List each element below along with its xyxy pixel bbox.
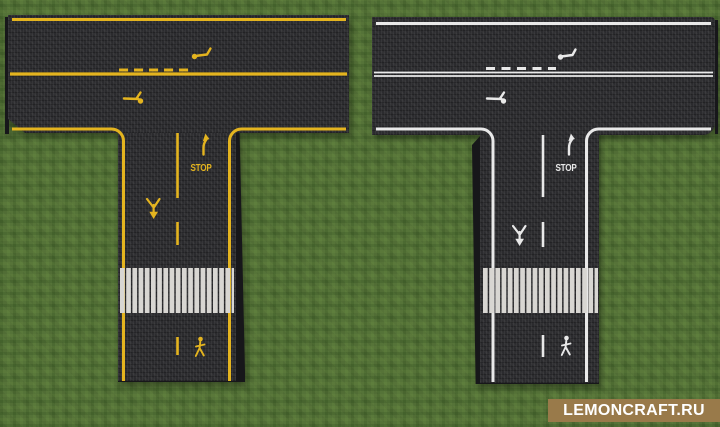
road-right-stem <box>480 135 599 383</box>
road-right-horizontal-bar <box>372 17 715 135</box>
watermark: LEMONCRAFT.RU <box>548 399 720 422</box>
road-left-stem <box>118 133 236 381</box>
road-left: STOP <box>8 15 349 382</box>
scene: STOP <box>0 0 720 427</box>
bottom-edge-line-right <box>230 129 347 381</box>
road-right: STOP <box>372 17 718 383</box>
road-left-stem-east-face <box>236 133 245 382</box>
road-right-east-face <box>715 20 718 134</box>
watermark-text: LEMONCRAFT.RU <box>563 402 705 420</box>
road-left-horizontal-bar <box>8 15 349 133</box>
bottom-edge-line-right <box>587 129 712 382</box>
bottom-edge-line-left <box>12 129 124 381</box>
